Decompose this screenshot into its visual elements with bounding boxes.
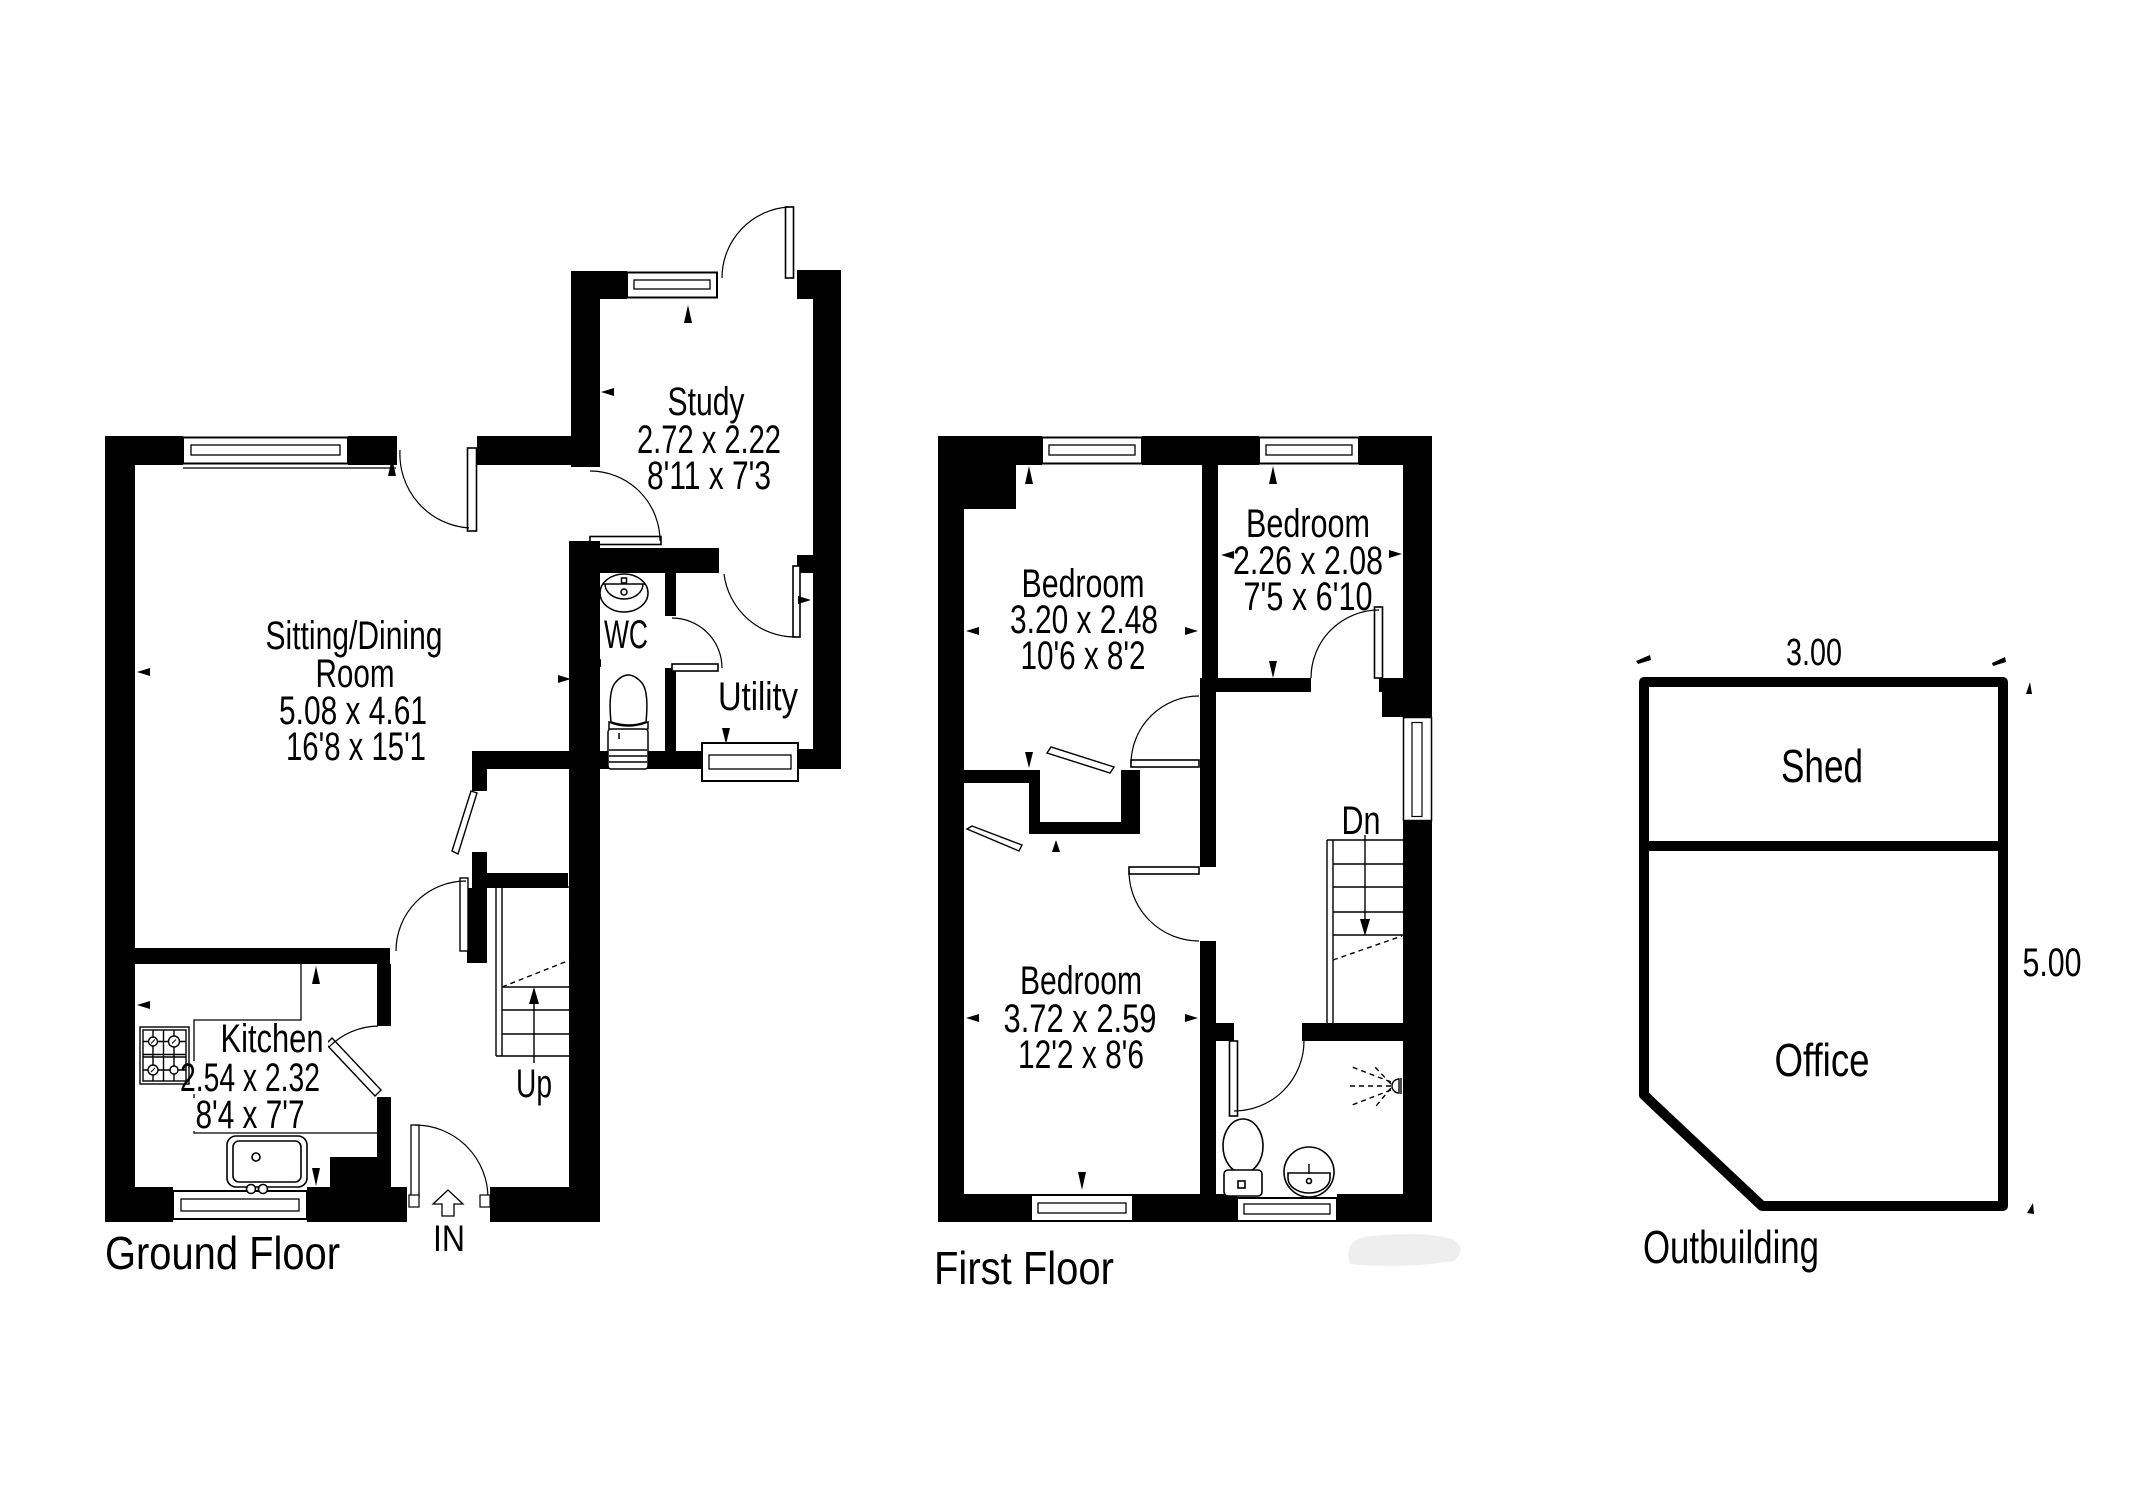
svg-text:8'11 x 7'3: 8'11 x 7'3 [647, 454, 771, 498]
svg-text:10'6 x 8'2: 10'6 x 8'2 [1021, 634, 1146, 678]
svg-text:Utility: Utility [718, 675, 798, 719]
svg-text:Up: Up [516, 1062, 552, 1106]
svg-text:Kitchen: Kitchen [221, 1017, 324, 1061]
svg-text:First Floor: First Floor [934, 1242, 1114, 1294]
svg-text:WC: WC [604, 613, 648, 657]
svg-text:8'4 x 7'7: 8'4 x 7'7 [196, 1093, 305, 1137]
svg-text:Shed: Shed [1781, 740, 1863, 792]
svg-text:Ground Floor: Ground Floor [105, 1227, 340, 1279]
svg-text:7'5 x 6'10: 7'5 x 6'10 [1244, 575, 1373, 619]
svg-text:3.00: 3.00 [1786, 632, 1842, 674]
svg-text:12'2 x 8'6: 12'2 x 8'6 [1018, 1033, 1144, 1077]
svg-text:Dn: Dn [1342, 799, 1381, 843]
svg-text:5.00: 5.00 [2023, 941, 2082, 985]
svg-text:IN: IN [433, 1218, 465, 1259]
svg-text:Office: Office [1775, 1034, 1870, 1086]
svg-text:16'8 x 15'1: 16'8 x 15'1 [286, 725, 426, 769]
svg-text:Outbuilding: Outbuilding [1643, 1221, 1819, 1273]
